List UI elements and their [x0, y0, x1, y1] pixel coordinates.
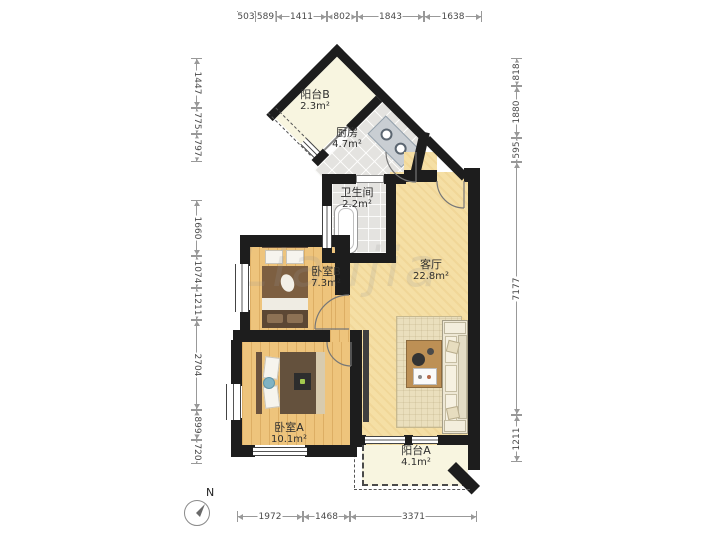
dim-bottom-1972: 1972: [237, 510, 303, 524]
dim-label: 899: [192, 415, 202, 434]
dim-label: 1843: [378, 12, 403, 22]
dim-label: 1660: [192, 216, 202, 241]
sofa-armrest: [444, 420, 466, 432]
wall-bath-left-upper: [322, 174, 332, 208]
wall-right: [468, 168, 480, 470]
room-name: 客厅: [413, 258, 449, 271]
floor-plan: Lianjia N 阳台B 2.3m² 厨房 4.7m² 卫生间 2.2m²: [0, 0, 720, 540]
sofa-back: [458, 335, 467, 419]
wall-living-top: [404, 170, 437, 182]
wall-bedroom-a-door-post: [350, 330, 362, 342]
dim-top-503: 503: [237, 10, 255, 24]
dim-left-1074: 1074: [190, 256, 204, 288]
room-area: 10.1m²: [271, 434, 307, 446]
dim-left-2704: 2704: [190, 320, 204, 410]
bathroom-door-leaf: [356, 175, 384, 183]
dim-label: 802: [332, 12, 351, 22]
room-label-living-room: 客厅 22.8m²: [413, 258, 449, 283]
room-area: 2.3m²: [300, 101, 330, 113]
dim-right-818: 818: [510, 58, 524, 86]
dim-left-1660: 1660: [190, 200, 204, 256]
room-area: 7.3m²: [311, 278, 341, 290]
room-label-balcony-a: 阳台A 4.1m²: [401, 444, 431, 469]
wall-bedroom-a-bottom-left: [231, 445, 255, 457]
room-label-balcony-b: 阳台B 2.3m²: [300, 88, 330, 113]
room-name: 卧室B: [311, 265, 341, 278]
room-name: 厨房: [332, 126, 362, 139]
tray: [413, 368, 437, 385]
dim-label: 1447: [192, 71, 202, 96]
room-label-bathroom: 卫生间 2.2m²: [341, 186, 374, 211]
room-name: 阳台A: [401, 444, 431, 457]
dim-label: 589: [256, 12, 275, 22]
room-label-kitchen: 厨房 4.7m²: [332, 126, 362, 151]
wall-bedroom-a-bottom-right: [305, 445, 357, 457]
dim-label: 1468: [314, 512, 339, 522]
room-area: 4.1m²: [401, 457, 431, 469]
compass-n-label: N: [206, 486, 214, 499]
sofa-armrest: [444, 322, 466, 334]
dim-label: 818: [512, 62, 522, 81]
dim-left-720: 720: [190, 440, 204, 464]
compass-icon: [185, 501, 210, 526]
sofa-cushion: [445, 365, 457, 392]
wall-bedroom-b-left-upper: [240, 235, 250, 266]
wall-bedroom-a-left-upper: [231, 340, 242, 386]
wall-bedroom-a-right: [350, 342, 362, 447]
dim-top-1638: 1638: [424, 10, 482, 24]
dim-label: 1211: [512, 426, 522, 451]
sofa: [442, 320, 468, 434]
dim-label: 7177: [512, 276, 522, 301]
dim-bottom-3371: 3371: [350, 510, 477, 524]
burner-icon: [378, 126, 395, 143]
window-bathroom: [322, 206, 332, 248]
wall-entry-corner: [464, 168, 480, 182]
pillow: [263, 385, 281, 409]
dim-right-7177: 7177: [510, 162, 524, 415]
room-label-bedroom-a: 卧室A 10.1m²: [271, 421, 307, 446]
dim-left-797: 797: [190, 134, 204, 162]
dim-label: 1880: [512, 100, 522, 125]
tv-cabinet: [363, 330, 369, 422]
dim-label: 720: [192, 442, 202, 461]
dim-left-1447: 1447: [190, 58, 204, 108]
dim-label: 1411: [289, 12, 314, 22]
floor-bedroom-b-doorway: [335, 294, 350, 330]
pillow: [263, 356, 281, 380]
coffee-table: [406, 340, 442, 388]
room-area: 22.8m²: [413, 271, 449, 283]
throw-pillow: [446, 406, 460, 420]
teapot-icon: [412, 353, 425, 366]
dim-top-1411: 1411: [276, 10, 327, 24]
dim-label: 1972: [258, 512, 283, 522]
dim-label: 1074: [192, 260, 202, 285]
room-name: 卫生间: [341, 186, 374, 199]
room-label-bedroom-b: 卧室B 7.3m²: [311, 265, 341, 290]
floor-bedroom-a-doorway: [330, 330, 350, 342]
dim-label: 1638: [441, 12, 466, 22]
window-balcony-2: [412, 436, 438, 444]
dim-label: 3371: [401, 512, 426, 522]
dim-left-775: 775: [190, 108, 204, 134]
bed-cushion: [267, 314, 283, 323]
dim-label: 775: [192, 111, 202, 130]
dim-bottom-1468: 1468: [303, 510, 350, 524]
bed-bedroom-a: [256, 352, 328, 414]
bed-sheet: [262, 298, 308, 310]
dim-label: 797: [192, 138, 202, 157]
wall-balcony-right-top: [437, 435, 470, 445]
window-bedroom-a-bottom: [253, 447, 307, 456]
room-name: 阳台B: [300, 88, 330, 101]
dim-right-595: 595: [510, 138, 524, 162]
wall-bath-right: [386, 182, 396, 263]
room-area: 2.2m²: [341, 199, 374, 211]
room-area: 4.7m²: [332, 139, 362, 151]
dim-label: 2704: [192, 353, 202, 378]
dim-label: 1211: [192, 292, 202, 317]
headboard: [256, 352, 262, 414]
dim-top-1843: 1843: [357, 10, 424, 24]
bed-cushion: [287, 314, 303, 323]
balcony-a-outer-dash-bottom: [354, 489, 470, 490]
dim-top-802: 802: [327, 10, 357, 24]
window-bedroom-b: [235, 264, 249, 312]
dim-left-1211: 1211: [190, 288, 204, 320]
window-balcony-1: [365, 436, 405, 444]
wall-bedrooms-divider: [233, 330, 330, 342]
wall-bath-bottom: [322, 253, 396, 263]
dim-left-899: 899: [190, 410, 204, 440]
window-bedroom-a-left: [226, 384, 241, 420]
cup-icon: [427, 348, 434, 355]
room-name: 卧室A: [271, 421, 307, 434]
dim-top-589: 589: [255, 10, 276, 24]
dim-label: 503: [236, 12, 255, 22]
dim-right-1880: 1880: [510, 86, 524, 138]
laptop-logo: [300, 379, 305, 384]
dim-right-1211: 1211: [510, 415, 524, 462]
dim-label: 595: [512, 140, 522, 159]
bed-sheet: [316, 352, 325, 414]
round-pillow: [263, 377, 275, 389]
